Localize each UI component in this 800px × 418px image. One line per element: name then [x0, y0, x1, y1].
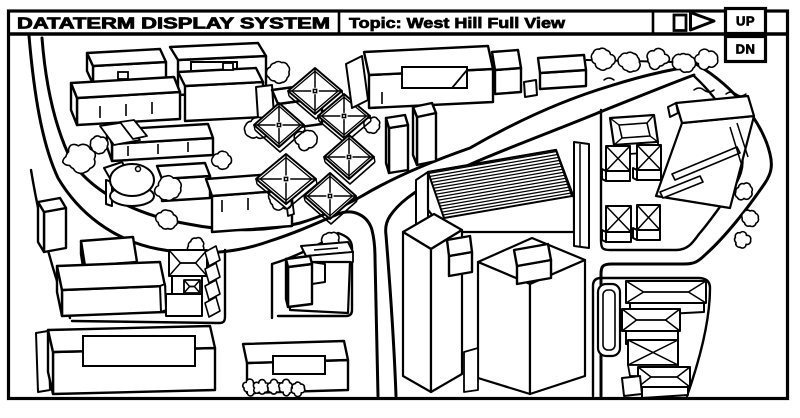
svg-text:Topic: West Hill Full View: Topic: West Hill Full View — [349, 16, 566, 32]
svg-text:DN: DN — [736, 42, 756, 57]
svg-text:DATATERM DISPLAY SYSTEM: DATATERM DISPLAY SYSTEM — [17, 16, 330, 33]
svg-text:UP: UP — [736, 14, 755, 29]
